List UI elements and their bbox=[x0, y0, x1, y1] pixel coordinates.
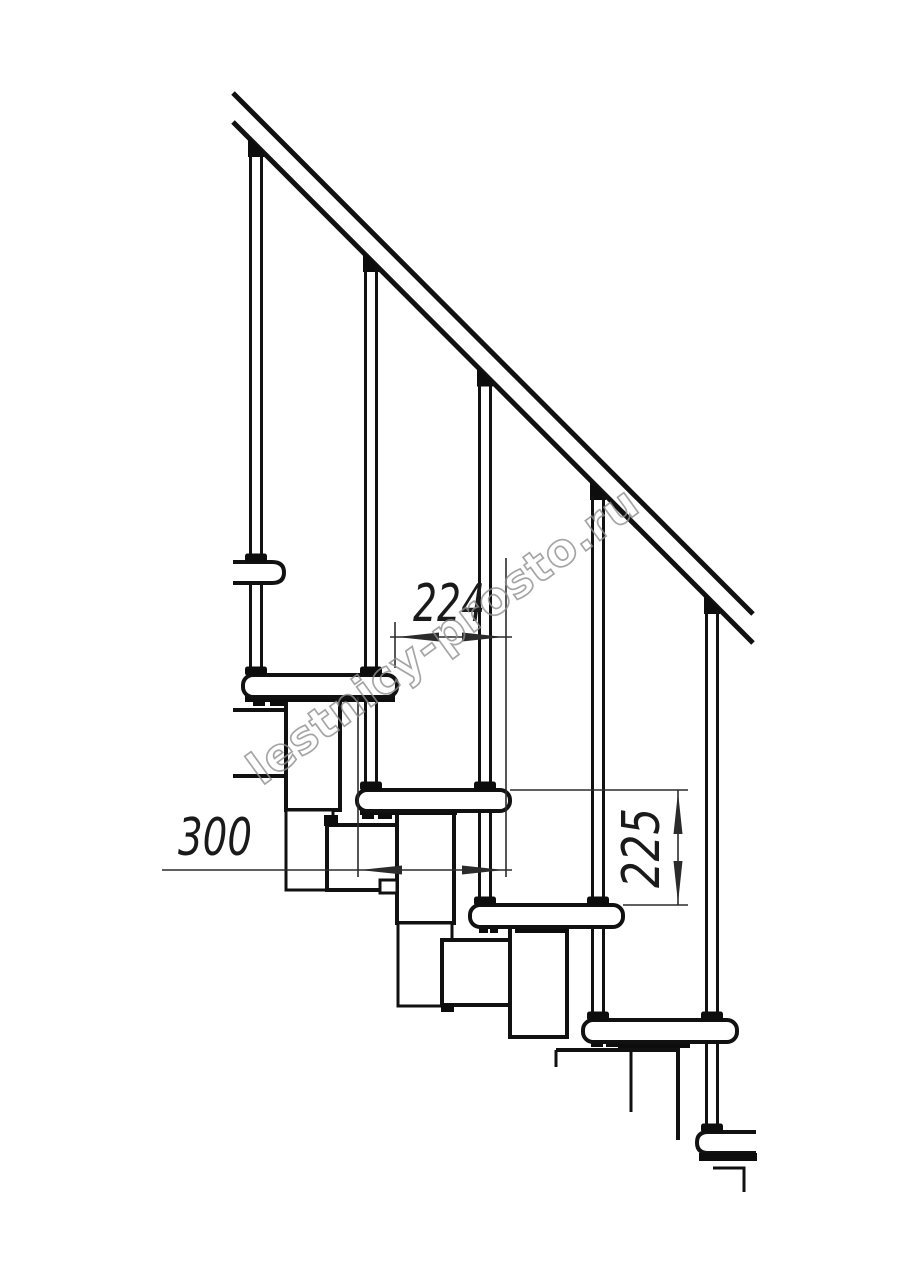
handrail-top-line bbox=[233, 93, 753, 614]
baluster-foot bbox=[474, 897, 496, 906]
baluster-collar bbox=[245, 554, 267, 563]
arrowhead-up bbox=[674, 792, 683, 834]
baluster-3 bbox=[480, 382, 491, 903]
baluster-foot bbox=[701, 1124, 723, 1133]
module-cut-left-lines bbox=[556, 1050, 631, 1112]
baluster-1 bbox=[251, 153, 262, 673]
staircase-drawing-page: 224 300 225 lestnicy-prosto.ru bbox=[0, 0, 914, 1280]
tread-4 bbox=[583, 1020, 737, 1042]
tread-2 bbox=[357, 790, 510, 811]
arrowhead-down bbox=[674, 861, 683, 903]
handrail bbox=[233, 93, 753, 643]
tread-3 bbox=[470, 905, 623, 927]
baluster-collar bbox=[701, 1012, 723, 1021]
staircase-drawing: 224 300 225 lestnicy-prosto.ru bbox=[0, 0, 914, 1280]
module-tube bbox=[397, 812, 454, 923]
baluster-collar bbox=[587, 897, 609, 906]
module-foot bbox=[441, 1004, 454, 1012]
dimension-label-225: 225 bbox=[612, 808, 672, 888]
tread-underside-strip bbox=[699, 1153, 757, 1161]
baluster-4 bbox=[593, 496, 604, 1018]
baluster-collar bbox=[474, 782, 496, 791]
module-foot bbox=[324, 815, 338, 826]
arrowhead-right bbox=[462, 866, 504, 875]
baluster-foot bbox=[587, 1012, 609, 1021]
watermark-text: lestnicy-prosto.ru bbox=[237, 476, 649, 795]
baluster-foot bbox=[360, 782, 382, 791]
module-tube bbox=[510, 927, 567, 1037]
module-joint-notch bbox=[380, 880, 397, 893]
dimension-label-300: 300 bbox=[178, 808, 252, 868]
baluster-5 bbox=[707, 610, 718, 1130]
module-plate bbox=[442, 940, 518, 1005]
baluster-foot bbox=[245, 667, 267, 676]
dimension-step-rise: 225 bbox=[510, 790, 688, 905]
tread-5-cut bbox=[697, 1132, 756, 1153]
tread-0-cut bbox=[233, 562, 284, 583]
cut-step-line bbox=[713, 1168, 744, 1192]
